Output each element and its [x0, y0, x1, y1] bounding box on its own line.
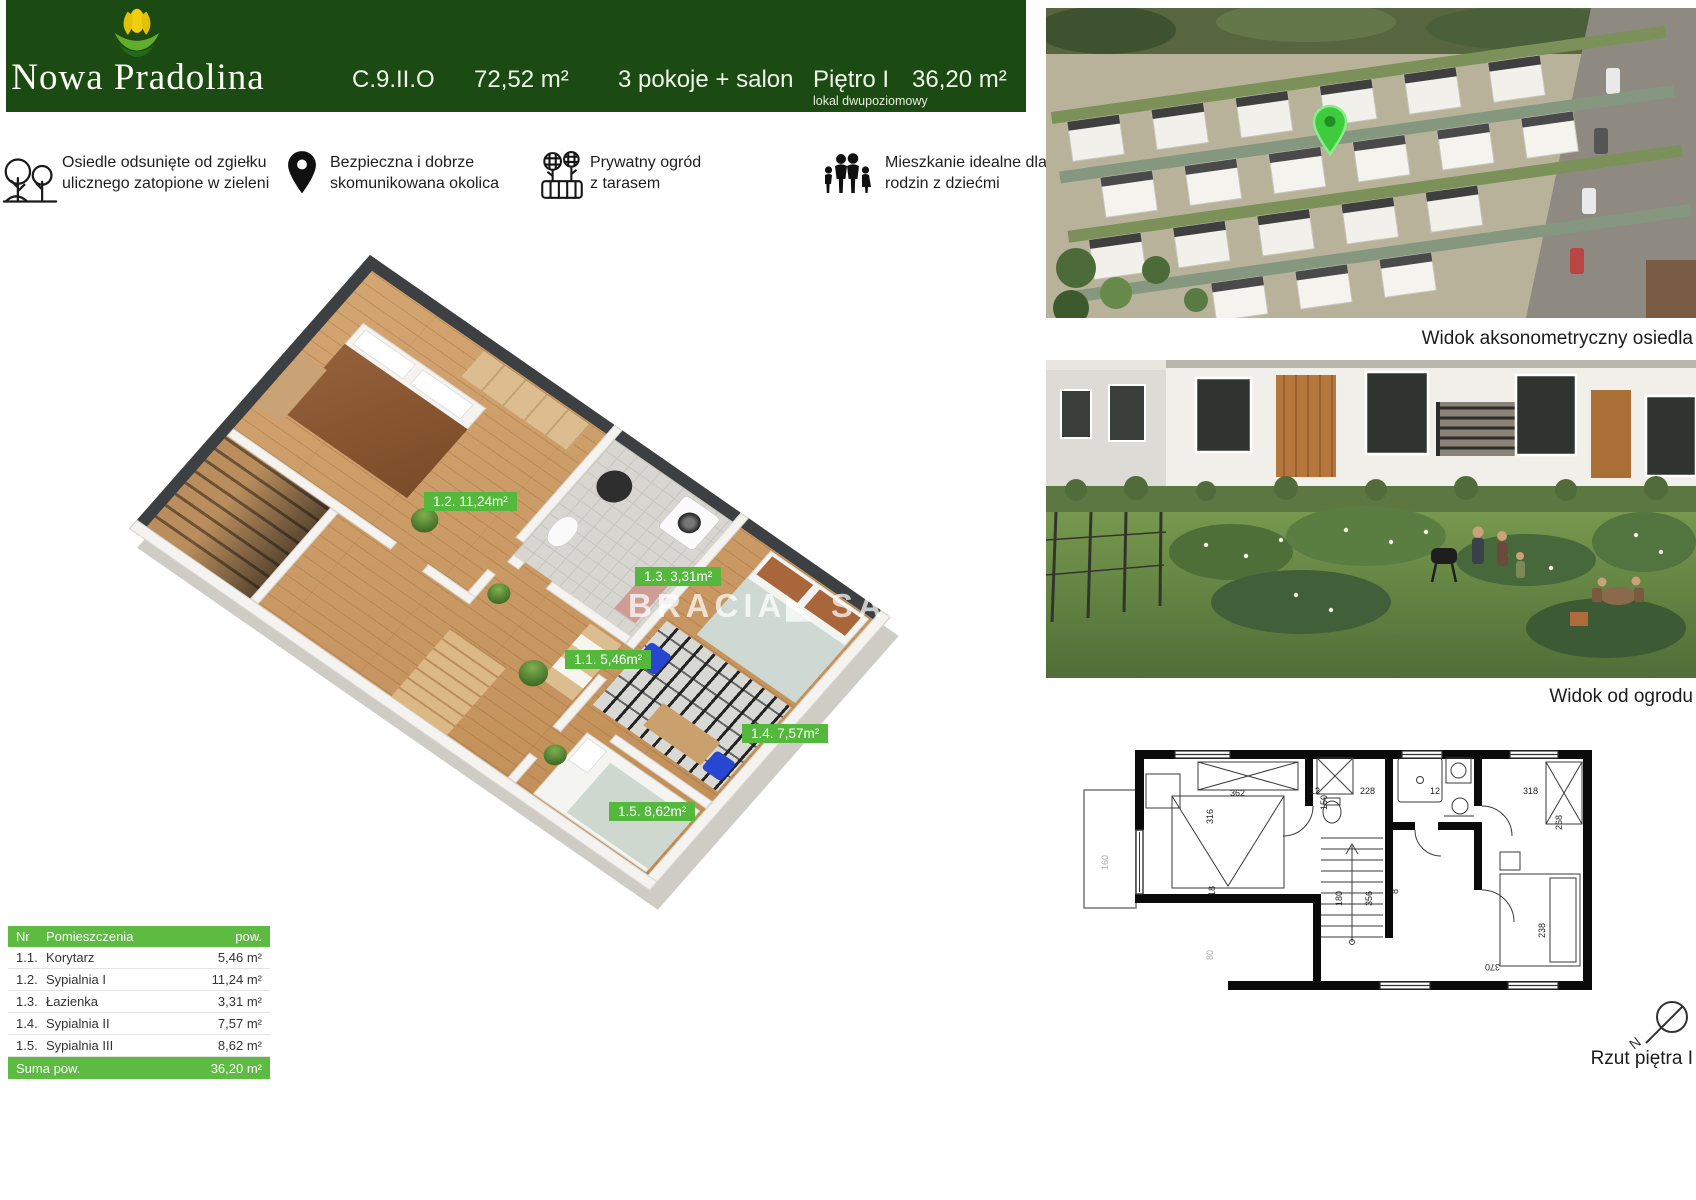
brand-title: Nowa Pradolina	[10, 56, 266, 99]
room-label-1-2: 1.2. 11,24m²	[424, 492, 517, 511]
bed-2	[697, 551, 869, 703]
room-number: 1.1.	[16, 950, 46, 965]
dimension-label: 160	[1100, 855, 1110, 870]
floorplan-2d: 3621215022812318316268188016035618083702…	[1080, 698, 1600, 998]
caption-aerial: Widok aksonometryczny osiedla	[1422, 328, 1693, 350]
table-row: 1.5.Sypialnia III8,62 m²	[8, 1035, 270, 1057]
table-row: 1.3.Łazienka3,31 m²	[8, 991, 270, 1013]
washing-machine	[657, 494, 722, 552]
plan-base-shadow	[137, 274, 899, 910]
dimension-label: 18	[1207, 886, 1217, 896]
room-number: 1.2.	[16, 972, 46, 987]
aerial-view-photo	[1046, 8, 1696, 318]
room-label-1-4: 1.4. 7,57m²	[742, 724, 828, 743]
bed-1	[284, 323, 486, 499]
header-area: pow.	[235, 929, 262, 944]
location-pin-icon	[287, 150, 317, 195]
stairs-secondary	[391, 628, 507, 735]
room-name: Sypialnia I	[46, 972, 212, 987]
wardrobe	[461, 351, 590, 451]
family-icon	[822, 153, 872, 197]
room-area: 3,31 m²	[218, 994, 262, 1009]
unit-code: C.9.II.O	[352, 66, 435, 94]
desk	[256, 353, 327, 423]
dimension-label: 356	[1364, 891, 1374, 906]
room-name: Korytarz	[46, 950, 218, 965]
dimension-label: 228	[1360, 786, 1375, 796]
dimension-label: 8	[1390, 889, 1400, 894]
plan-floor	[129, 255, 891, 891]
garden-icon	[538, 150, 586, 202]
room-label-1-1: 1.1. 5,46m²	[565, 650, 651, 669]
desk-2	[643, 703, 720, 765]
dimension-label: 318	[1523, 786, 1538, 796]
feature-text-green: Osiedle odsunięte od zgiełku ulicznego z…	[62, 152, 292, 194]
dimension-label: 370	[1485, 962, 1500, 972]
table-footer: Suma pow. 36,20 m²	[8, 1057, 270, 1079]
room-table: Nr Pomieszczenia pow. 1.1.Korytarz5,46 m…	[8, 926, 270, 1079]
total-label: Suma pow.	[16, 1061, 211, 1076]
blue-chair	[634, 641, 672, 675]
bathroom-floor	[514, 440, 733, 637]
toilet	[541, 511, 584, 552]
bath-mat	[614, 568, 671, 623]
caption-plan: Rzut piętra I	[1591, 1048, 1693, 1070]
table-row: 1.4.Sypialnia II7,57 m²	[8, 1013, 270, 1035]
room-area: 7,57 m²	[218, 1016, 262, 1031]
total-area: 72,52 m²	[474, 66, 569, 94]
dimension-label: 238	[1537, 923, 1547, 938]
room-number: 1.5.	[16, 1038, 46, 1053]
dimension-label: 362	[1230, 788, 1245, 798]
room-label-1-5: 1.5. 8,62m²	[609, 802, 695, 821]
floor-label: Piętro I	[813, 66, 889, 94]
header-bar: Nowa Pradolina C.9.II.O 72,52 m² 3 pokoj…	[6, 0, 1026, 112]
header-name: Pomieszczenia	[46, 929, 235, 944]
bed-3	[533, 732, 700, 872]
room-number: 1.3.	[16, 994, 46, 1009]
floor-area: 36,20 m²	[912, 66, 1007, 94]
shelf	[542, 623, 622, 700]
room-area: 11,24 m²	[212, 972, 262, 987]
feature-text-family: Mieszkanie idealne dla rodzin z dziećmi	[885, 152, 1065, 194]
room-name: Sypialnia II	[46, 1016, 218, 1031]
garden-view-photo	[1046, 360, 1696, 678]
table-header: Nr Pomieszczenia pow.	[8, 926, 270, 947]
room-area: 8,62 m²	[218, 1038, 262, 1053]
watermark: BRACIA◣ SAD	[628, 586, 916, 625]
dimension-label: 12	[1430, 786, 1440, 796]
room-name: Łazienka	[46, 994, 218, 1009]
dimension-label: 12	[1310, 786, 1320, 796]
water-heater	[589, 464, 639, 509]
trees-icon	[2, 150, 58, 210]
patterned-rug	[593, 621, 792, 792]
feature-text-garden: Prywatny ogród z tarasem	[590, 152, 750, 194]
room-name: Sypialnia III	[46, 1038, 218, 1053]
dimension-label: 268	[1554, 815, 1564, 830]
total-area-value: 36,20 m²	[211, 1061, 262, 1076]
table-row: 1.2.Sypialnia I11,24 m²	[8, 969, 270, 991]
floor-note: lokal dwupoziomowy	[813, 94, 928, 108]
table-row: 1.1.Korytarz5,46 m²	[8, 947, 270, 969]
north-arrow-icon: N	[1628, 996, 1694, 1052]
room-label-1-3: 1.3. 3,31m²	[635, 567, 721, 586]
dimension-label: 80	[1205, 950, 1215, 960]
dimension-label: 180	[1334, 891, 1344, 906]
room-number: 1.4.	[16, 1016, 46, 1031]
stairs-main	[147, 436, 330, 599]
brand-logo-icon	[104, 6, 170, 58]
dimension-label: 150	[1319, 795, 1329, 810]
header-nr: Nr	[16, 929, 46, 944]
rooms-count: 3 pokoje + salon	[618, 66, 793, 94]
feature-text-location: Bezpieczna i dobrze skomunikowana okolic…	[330, 152, 550, 194]
room-table-body: 1.1.Korytarz5,46 m²1.2.Sypialnia I11,24 …	[8, 947, 270, 1057]
dimension-label: 316	[1205, 809, 1215, 824]
room-area: 5,46 m²	[218, 950, 262, 965]
